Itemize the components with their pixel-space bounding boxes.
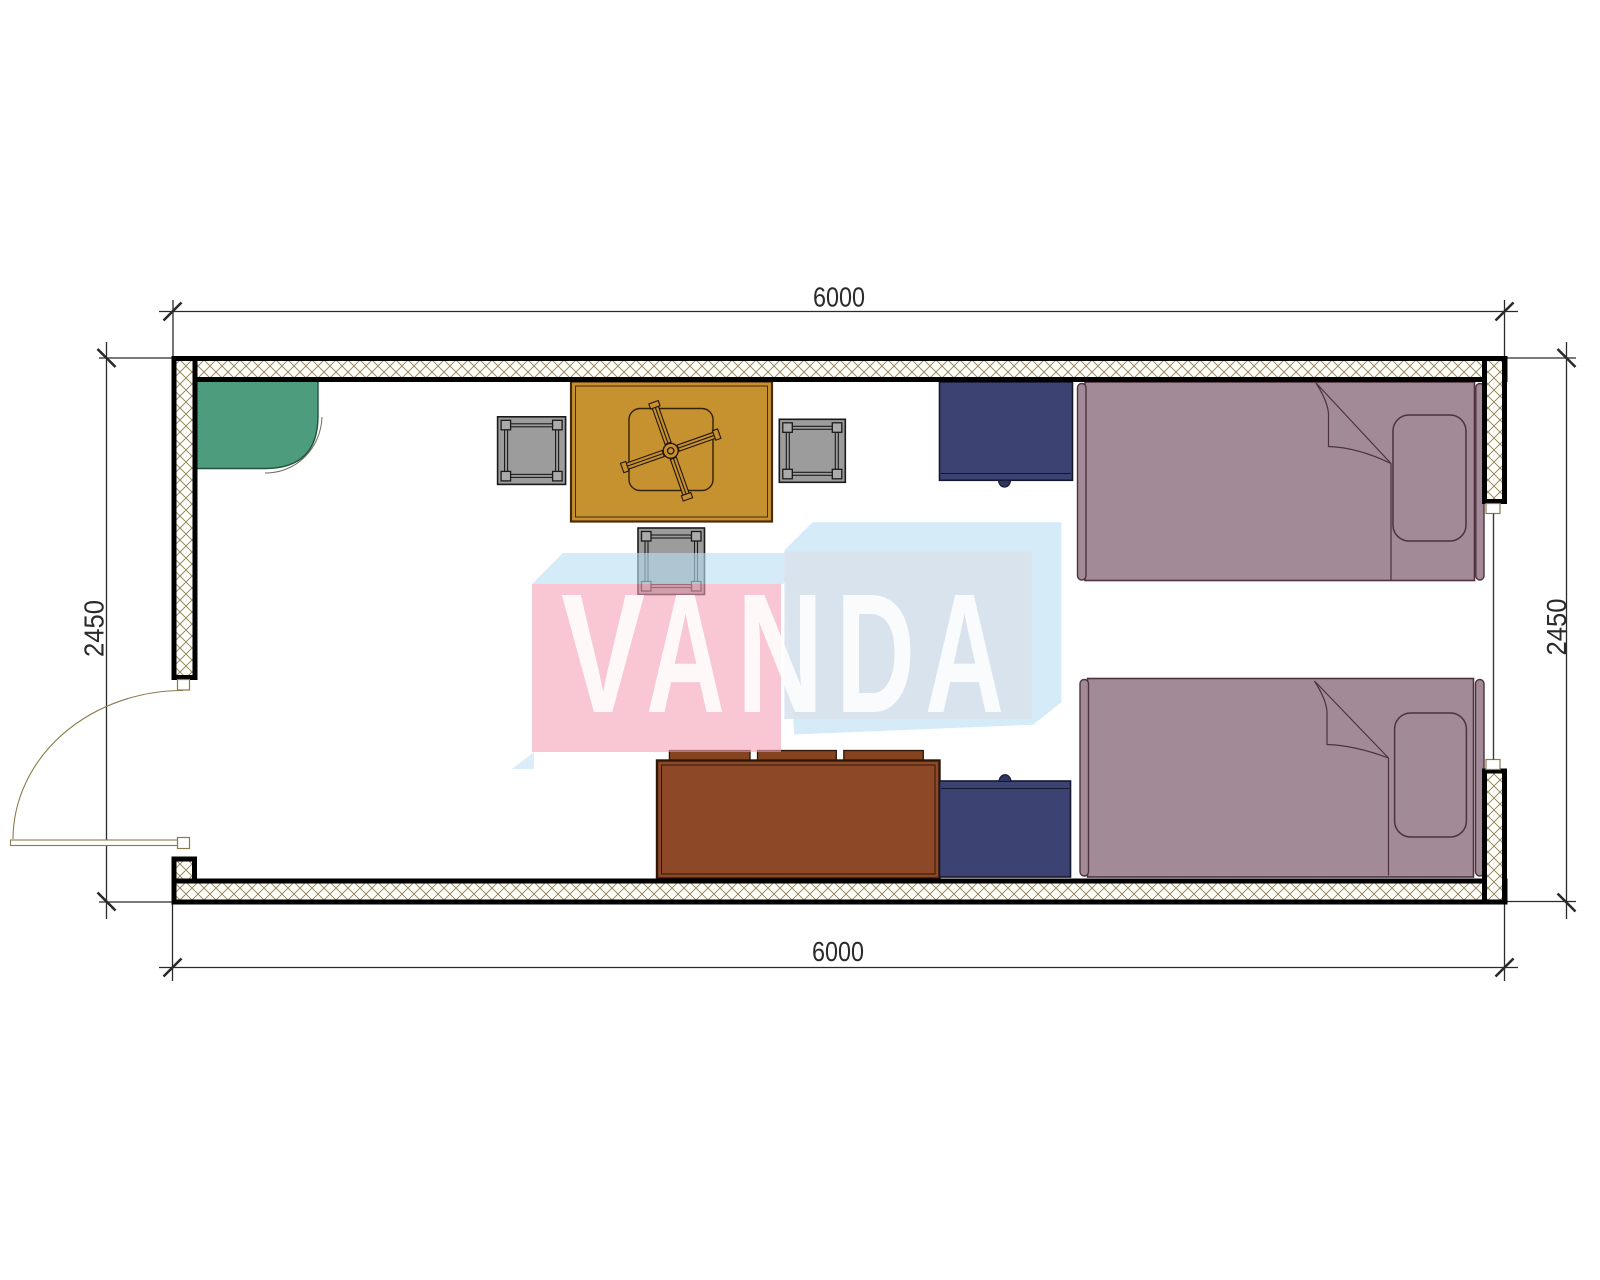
svg-text:A: A	[925, 559, 1004, 749]
svg-text:D: D	[836, 559, 915, 749]
svg-text:V: V	[561, 559, 645, 749]
svg-text:2450: 2450	[79, 600, 110, 657]
svg-text:A: A	[646, 559, 725, 749]
svg-text:N: N	[737, 559, 824, 749]
svg-text:2450: 2450	[1541, 599, 1572, 656]
svg-text:6000: 6000	[813, 282, 865, 313]
svg-text:6000: 6000	[812, 936, 864, 967]
